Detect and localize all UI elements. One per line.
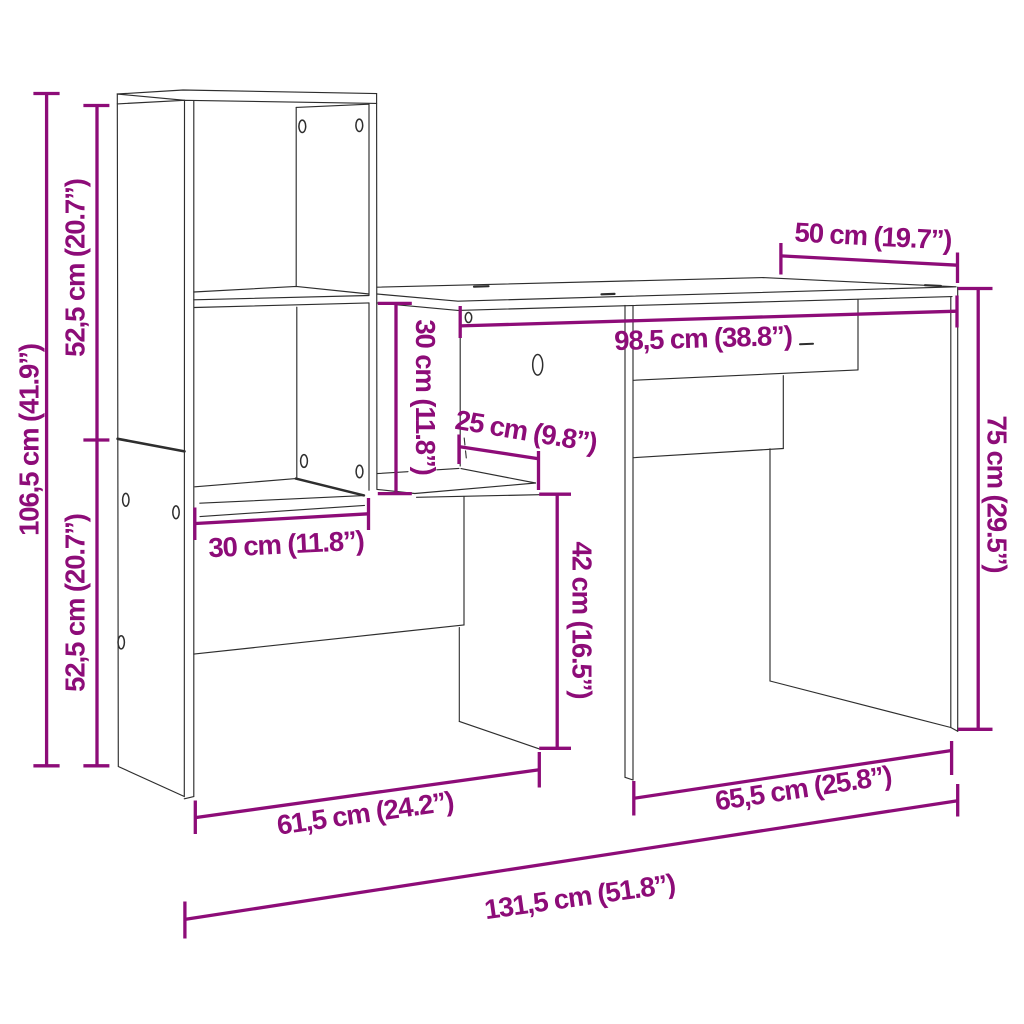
svg-text:30 cm (11.8”): 30 cm (11.8”) <box>208 525 365 564</box>
svg-text:75 cm (29.5”): 75 cm (29.5”) <box>982 416 1013 573</box>
svg-text:131,5 cm (51.8”): 131,5 cm (51.8”) <box>482 868 676 925</box>
svg-text:30 cm (11.8”): 30 cm (11.8”) <box>410 319 441 474</box>
svg-text:52,5 cm (20.7”): 52,5 cm (20.7”) <box>59 179 90 357</box>
svg-text:52,5 cm (20.7”): 52,5 cm (20.7”) <box>59 514 90 692</box>
svg-text:98,5 cm (38.8”): 98,5 cm (38.8”) <box>614 320 792 356</box>
svg-text:65,5 cm (25.8”): 65,5 cm (25.8”) <box>713 760 893 817</box>
svg-text:42 cm (16.5”): 42 cm (16.5”) <box>567 542 598 699</box>
svg-text:106,5 cm (41.9”): 106,5 cm (41.9”) <box>13 344 44 536</box>
svg-text:50 cm (19.7”): 50 cm (19.7”) <box>794 216 952 255</box>
